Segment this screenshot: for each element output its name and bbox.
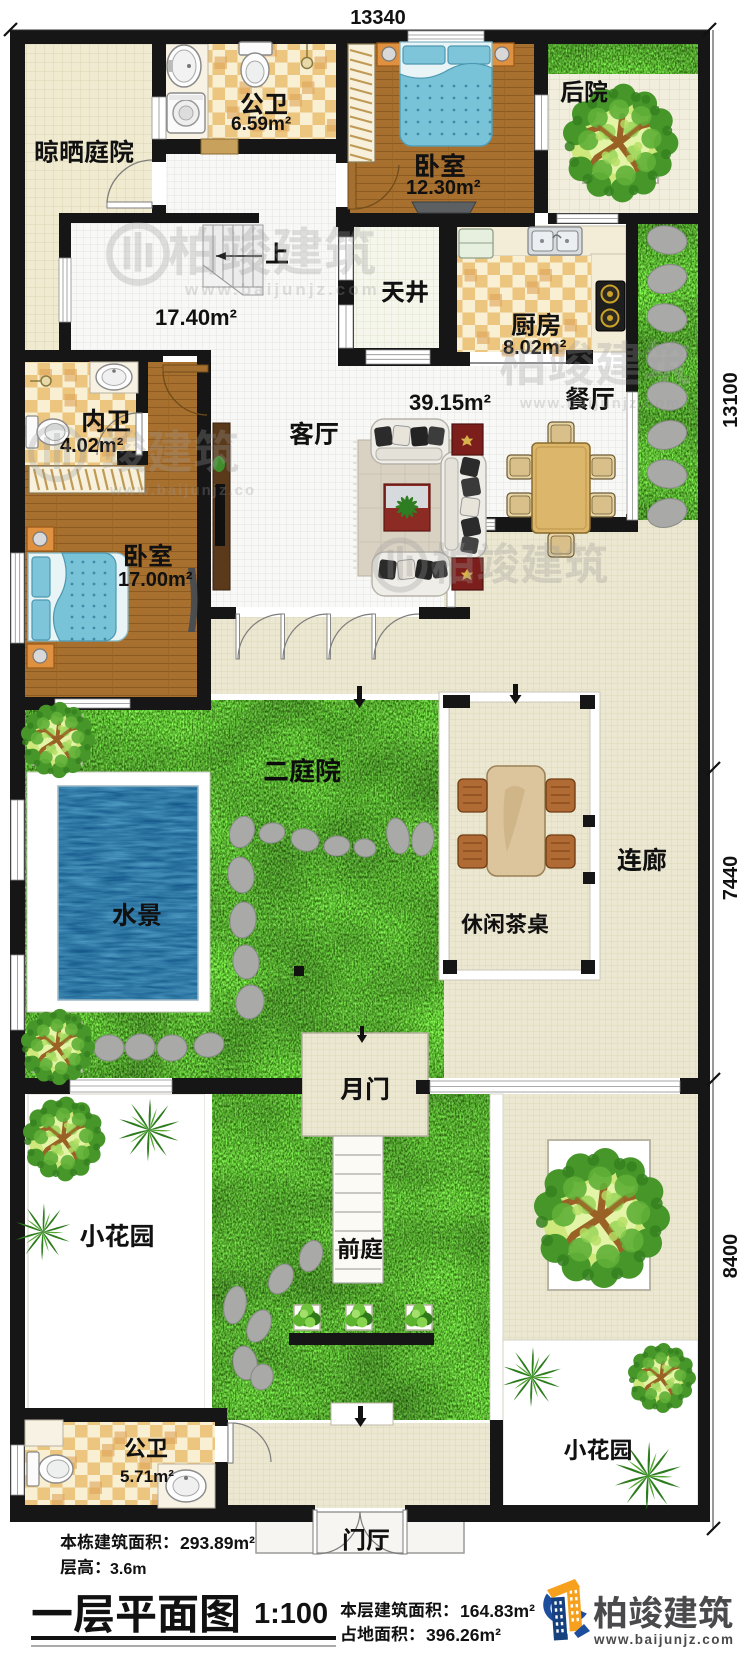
svg-text:164.83m²: 164.83m² (460, 1601, 535, 1621)
svg-text:8400: 8400 (720, 1234, 742, 1279)
svg-text:293.89m²: 293.89m² (180, 1533, 255, 1553)
svg-text:396.26m²: 396.26m² (426, 1625, 501, 1645)
svg-text:www.baijunjz.com: www.baijunjz.com (593, 1632, 735, 1647)
svg-text:5.71m²: 5.71m² (120, 1467, 174, 1486)
svg-text:www.baijunjz.co: www.baijunjz.co (109, 482, 256, 499)
svg-text:17.40m²: 17.40m² (155, 305, 237, 330)
svg-text:13100: 13100 (720, 372, 742, 428)
svg-text:7440: 7440 (720, 856, 742, 901)
svg-text:39.15m²: 39.15m² (409, 390, 491, 415)
svg-text:6.59m²: 6.59m² (231, 114, 291, 135)
svg-text:www.baijunjz.com: www.baijunjz.com (519, 395, 681, 412)
svg-text:3.6m: 3.6m (110, 1561, 146, 1578)
svg-text:17.00m²: 17.00m² (118, 569, 193, 591)
svg-text:12.30m²: 12.30m² (406, 177, 481, 199)
svg-text:13340: 13340 (350, 7, 406, 29)
svg-text:www.baijunjz.com: www.baijunjz.com (184, 280, 380, 299)
svg-text:1:100: 1:100 (254, 1598, 328, 1630)
